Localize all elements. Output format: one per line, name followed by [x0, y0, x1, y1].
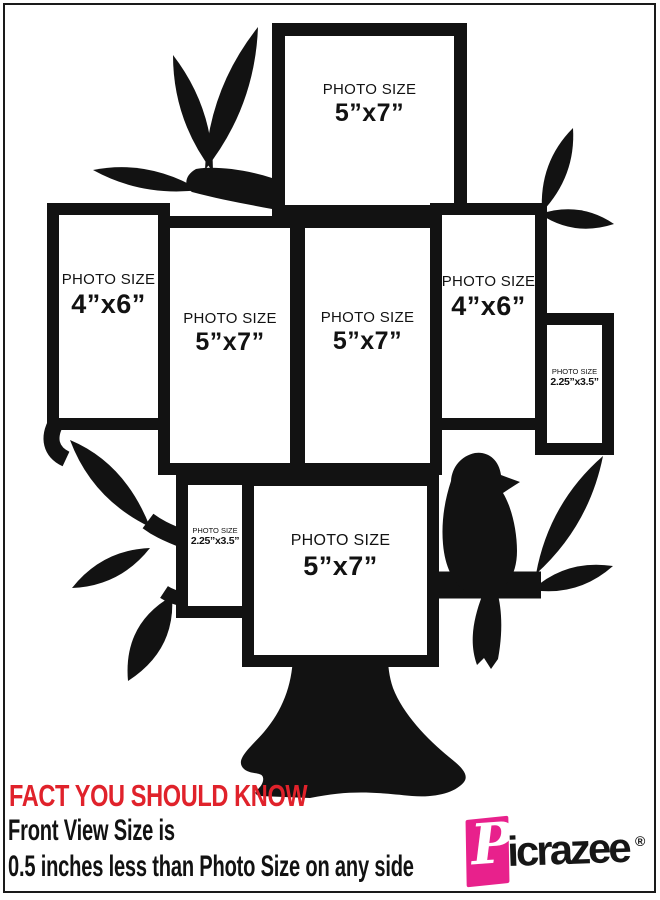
frame-label: PHOTO SIZE 5”x7” — [323, 81, 417, 128]
registered-trademark-icon: ® — [635, 833, 645, 849]
leaf-icon — [540, 209, 614, 228]
leaf-icon — [128, 596, 173, 681]
photo-size-value: 5”x7” — [323, 99, 417, 128]
leaf-icon — [542, 128, 573, 212]
leaf-icon — [532, 565, 613, 592]
photo-size-value: 5”x7” — [321, 327, 415, 356]
frame-label: PHOTO SIZE 5”x7” — [291, 532, 391, 582]
photo-size-value: 4”x6” — [62, 289, 156, 320]
fact-headline: FACT YOU SHOULD KNOW — [9, 778, 307, 814]
leaf-icon — [70, 440, 150, 527]
photo-frame-mid-left-5x7: PHOTO SIZE 5”x7” — [158, 216, 302, 475]
photo-frame-center-5x7: PHOTO SIZE 5”x7” — [293, 216, 442, 475]
photo-size-caption: PHOTO SIZE — [183, 310, 277, 327]
photo-size-caption: PHOTO SIZE — [291, 532, 391, 550]
frame-label: PHOTO SIZE 5”x7” — [321, 309, 415, 356]
photo-size-caption: PHOTO SIZE — [442, 273, 536, 290]
frame-label: PHOTO SIZE 4”x6” — [442, 273, 536, 322]
fact-line1: Front View Size is — [8, 814, 175, 848]
photo-size-value: 4”x6” — [442, 291, 536, 322]
photo-size-value: 5”x7” — [183, 328, 277, 357]
photo-frame-left-4x6: PHOTO SIZE 4”x6” — [47, 203, 170, 430]
bird-icon — [442, 453, 520, 669]
photo-frame-right-4x6: PHOTO SIZE 4”x6” — [430, 203, 547, 430]
photo-size-value: 2.25”x3.5” — [191, 535, 239, 547]
photo-frame-bottom-5x7: PHOTO SIZE 5”x7” — [242, 474, 439, 667]
frame-label: PHOTO SIZE 2.25”x3.5” — [191, 526, 239, 547]
photo-frame-top-5x7: PHOTO SIZE 5”x7” — [272, 23, 467, 218]
photo-size-value: 5”x7” — [291, 551, 391, 582]
photo-size-caption: PHOTO SIZE — [191, 526, 239, 535]
leaf-icon — [205, 27, 258, 170]
branch-icon — [186, 168, 272, 209]
photo-collage-product-image: PHOTO SIZE 5”x7” PHOTO SIZE 4”x6” PHOTO … — [0, 0, 660, 900]
leaf-icon — [72, 548, 150, 588]
trunk-icon — [241, 656, 466, 798]
brand-wordmark: icrazee — [507, 827, 630, 873]
frame-label: PHOTO SIZE 4”x6” — [62, 271, 156, 320]
leaf-icon — [93, 167, 200, 191]
brand-logo: P icrazee ® — [462, 810, 657, 892]
photo-size-caption: PHOTO SIZE — [550, 367, 598, 376]
photo-size-caption: PHOTO SIZE — [323, 81, 417, 98]
top-right-leaves-icon — [540, 128, 614, 229]
photo-size-value: 2.25”x3.5” — [550, 376, 598, 388]
fact-line2: 0.5 inches less than Photo Size on any s… — [8, 850, 414, 884]
leaf-icon — [536, 456, 603, 574]
frame-label: PHOTO SIZE 5”x7” — [183, 310, 277, 357]
photo-frame-right-small: PHOTO SIZE 2.25”x3.5” — [535, 313, 614, 455]
leaf-icon — [173, 55, 213, 172]
photo-size-caption: PHOTO SIZE — [321, 309, 415, 326]
photo-size-caption: PHOTO SIZE — [62, 271, 156, 288]
top-left-leaves-icon — [93, 27, 272, 209]
frame-label: PHOTO SIZE 2.25”x3.5” — [550, 367, 598, 388]
bird-branch-icon — [429, 453, 613, 669]
